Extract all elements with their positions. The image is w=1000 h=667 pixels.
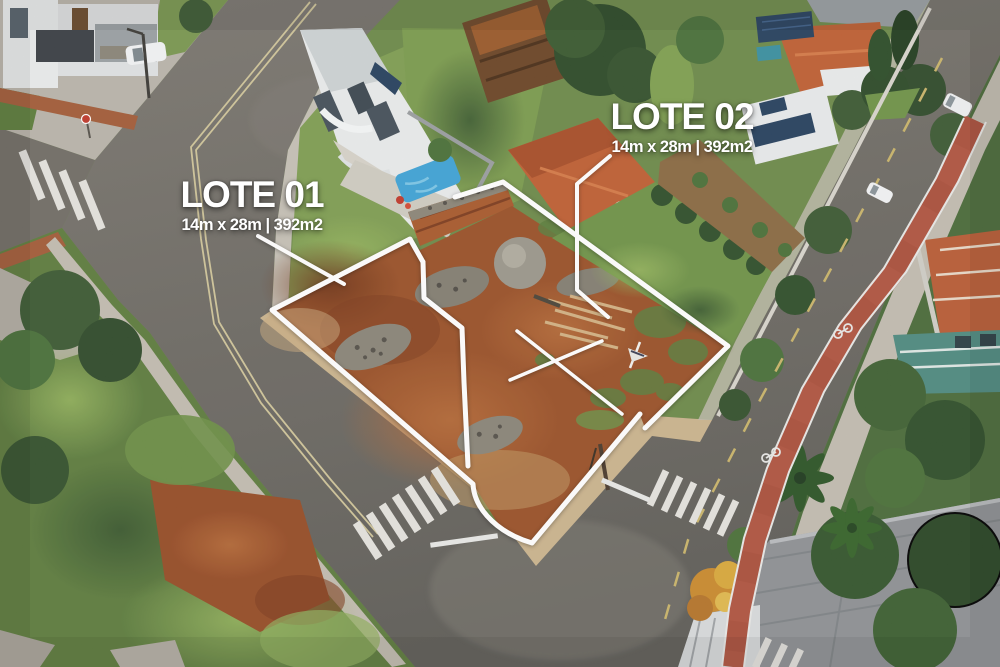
film-grain xyxy=(0,0,1000,667)
aerial-photo: LOTE 01 14m x 28m | 392m2 LOTE 02 14m x … xyxy=(0,0,1000,667)
aerial-scene xyxy=(0,0,1000,667)
